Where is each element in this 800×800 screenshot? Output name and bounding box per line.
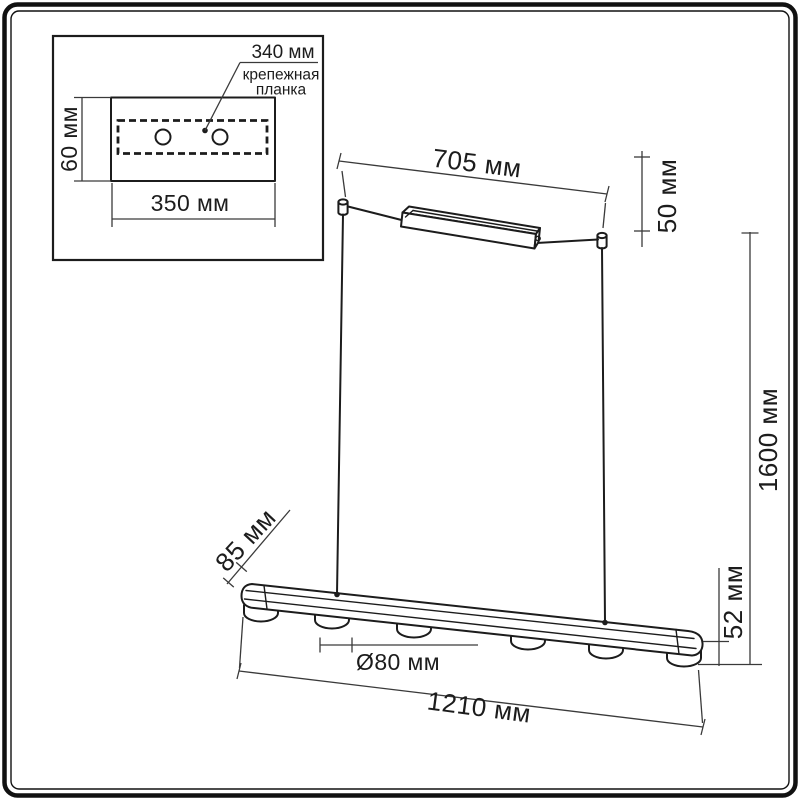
bracket-width-label: 340 мм: [251, 42, 314, 63]
dim-fixture-end-height: 52 мм: [698, 565, 762, 666]
dim-fixture-depth: 85 мм: [209, 502, 290, 587]
cable-mount-right: [602, 620, 608, 626]
dim-spot-diameter: Ø80 мм: [320, 638, 478, 676]
extension-line: [240, 617, 244, 668]
cable-left: [337, 215, 343, 595]
cable-mount-left: [334, 592, 340, 598]
extension-line: [342, 171, 346, 197]
suspension-cables: [337, 215, 605, 623]
ceiling-canopy: [401, 207, 540, 249]
plate-height-label: 60 мм: [56, 106, 82, 172]
cable-hanger-left: [338, 199, 347, 215]
pendant-light-dimension-drawing: 340 мм крепежная планка 60 мм 350 мм: [0, 0, 800, 800]
light-bar-fixture: [242, 584, 703, 667]
dim-canopy-height: 50 мм: [634, 151, 682, 247]
wire-left: [348, 207, 402, 221]
technical-drawing-page: 340 мм крепежная планка 60 мм 350 мм: [0, 0, 800, 800]
hanger-cap: [338, 199, 347, 204]
fixture-length-label: 1210 мм: [425, 685, 532, 728]
bracket-name-line2: планка: [256, 82, 307, 99]
mounting-plate-inset: 340 мм крепежная планка 60 мм 350 мм: [53, 36, 323, 260]
dim-canopy-length: 705 мм: [337, 143, 609, 228]
wire-right: [537, 240, 599, 244]
spot-diameter-label: Ø80 мм: [356, 649, 440, 675]
tick: [223, 578, 234, 587]
hanger-cap: [597, 233, 606, 238]
cable-right: [602, 248, 605, 622]
plate-width-label: 350 мм: [151, 190, 230, 216]
canopy-length-label: 705 мм: [431, 143, 523, 184]
canopy-height-label: 50 мм: [652, 159, 682, 233]
suspension-height-label: 1600 мм: [753, 388, 783, 492]
fixture-end-height-label: 52 мм: [718, 565, 748, 639]
extension-line: [699, 670, 703, 723]
cable-hanger-right: [597, 233, 606, 249]
extension-line: [603, 203, 606, 228]
fixture-depth-label: 85 мм: [209, 502, 282, 577]
